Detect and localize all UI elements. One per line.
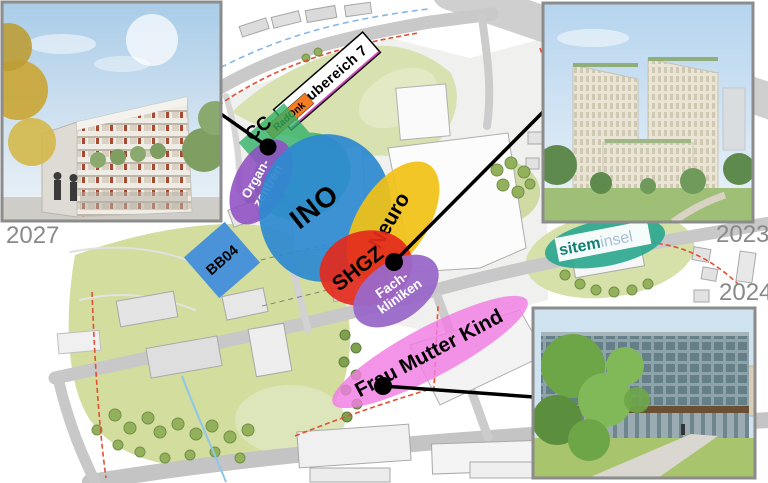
campus-masterplan-figure: Baubereich 7 RadOnk CC Organ- zentren IN…: [0, 0, 768, 483]
background-tower: [723, 88, 745, 150]
figure-svg: Baubereich 7 RadOnk CC Organ- zentren IN…: [0, 0, 768, 483]
year-label-2024: 2024: [719, 279, 768, 306]
photo-2024: [532, 308, 755, 478]
year-label-2023: 2023: [716, 221, 768, 248]
photo-2027: [0, 2, 232, 221]
pedestrian: [681, 424, 685, 435]
photo-2023: [537, 3, 755, 222]
year-label-2027: 2027: [6, 222, 59, 249]
map-dot-shgz: [385, 253, 403, 271]
map-dot-fmk: [374, 377, 392, 395]
map-dot-cc: [260, 139, 277, 156]
